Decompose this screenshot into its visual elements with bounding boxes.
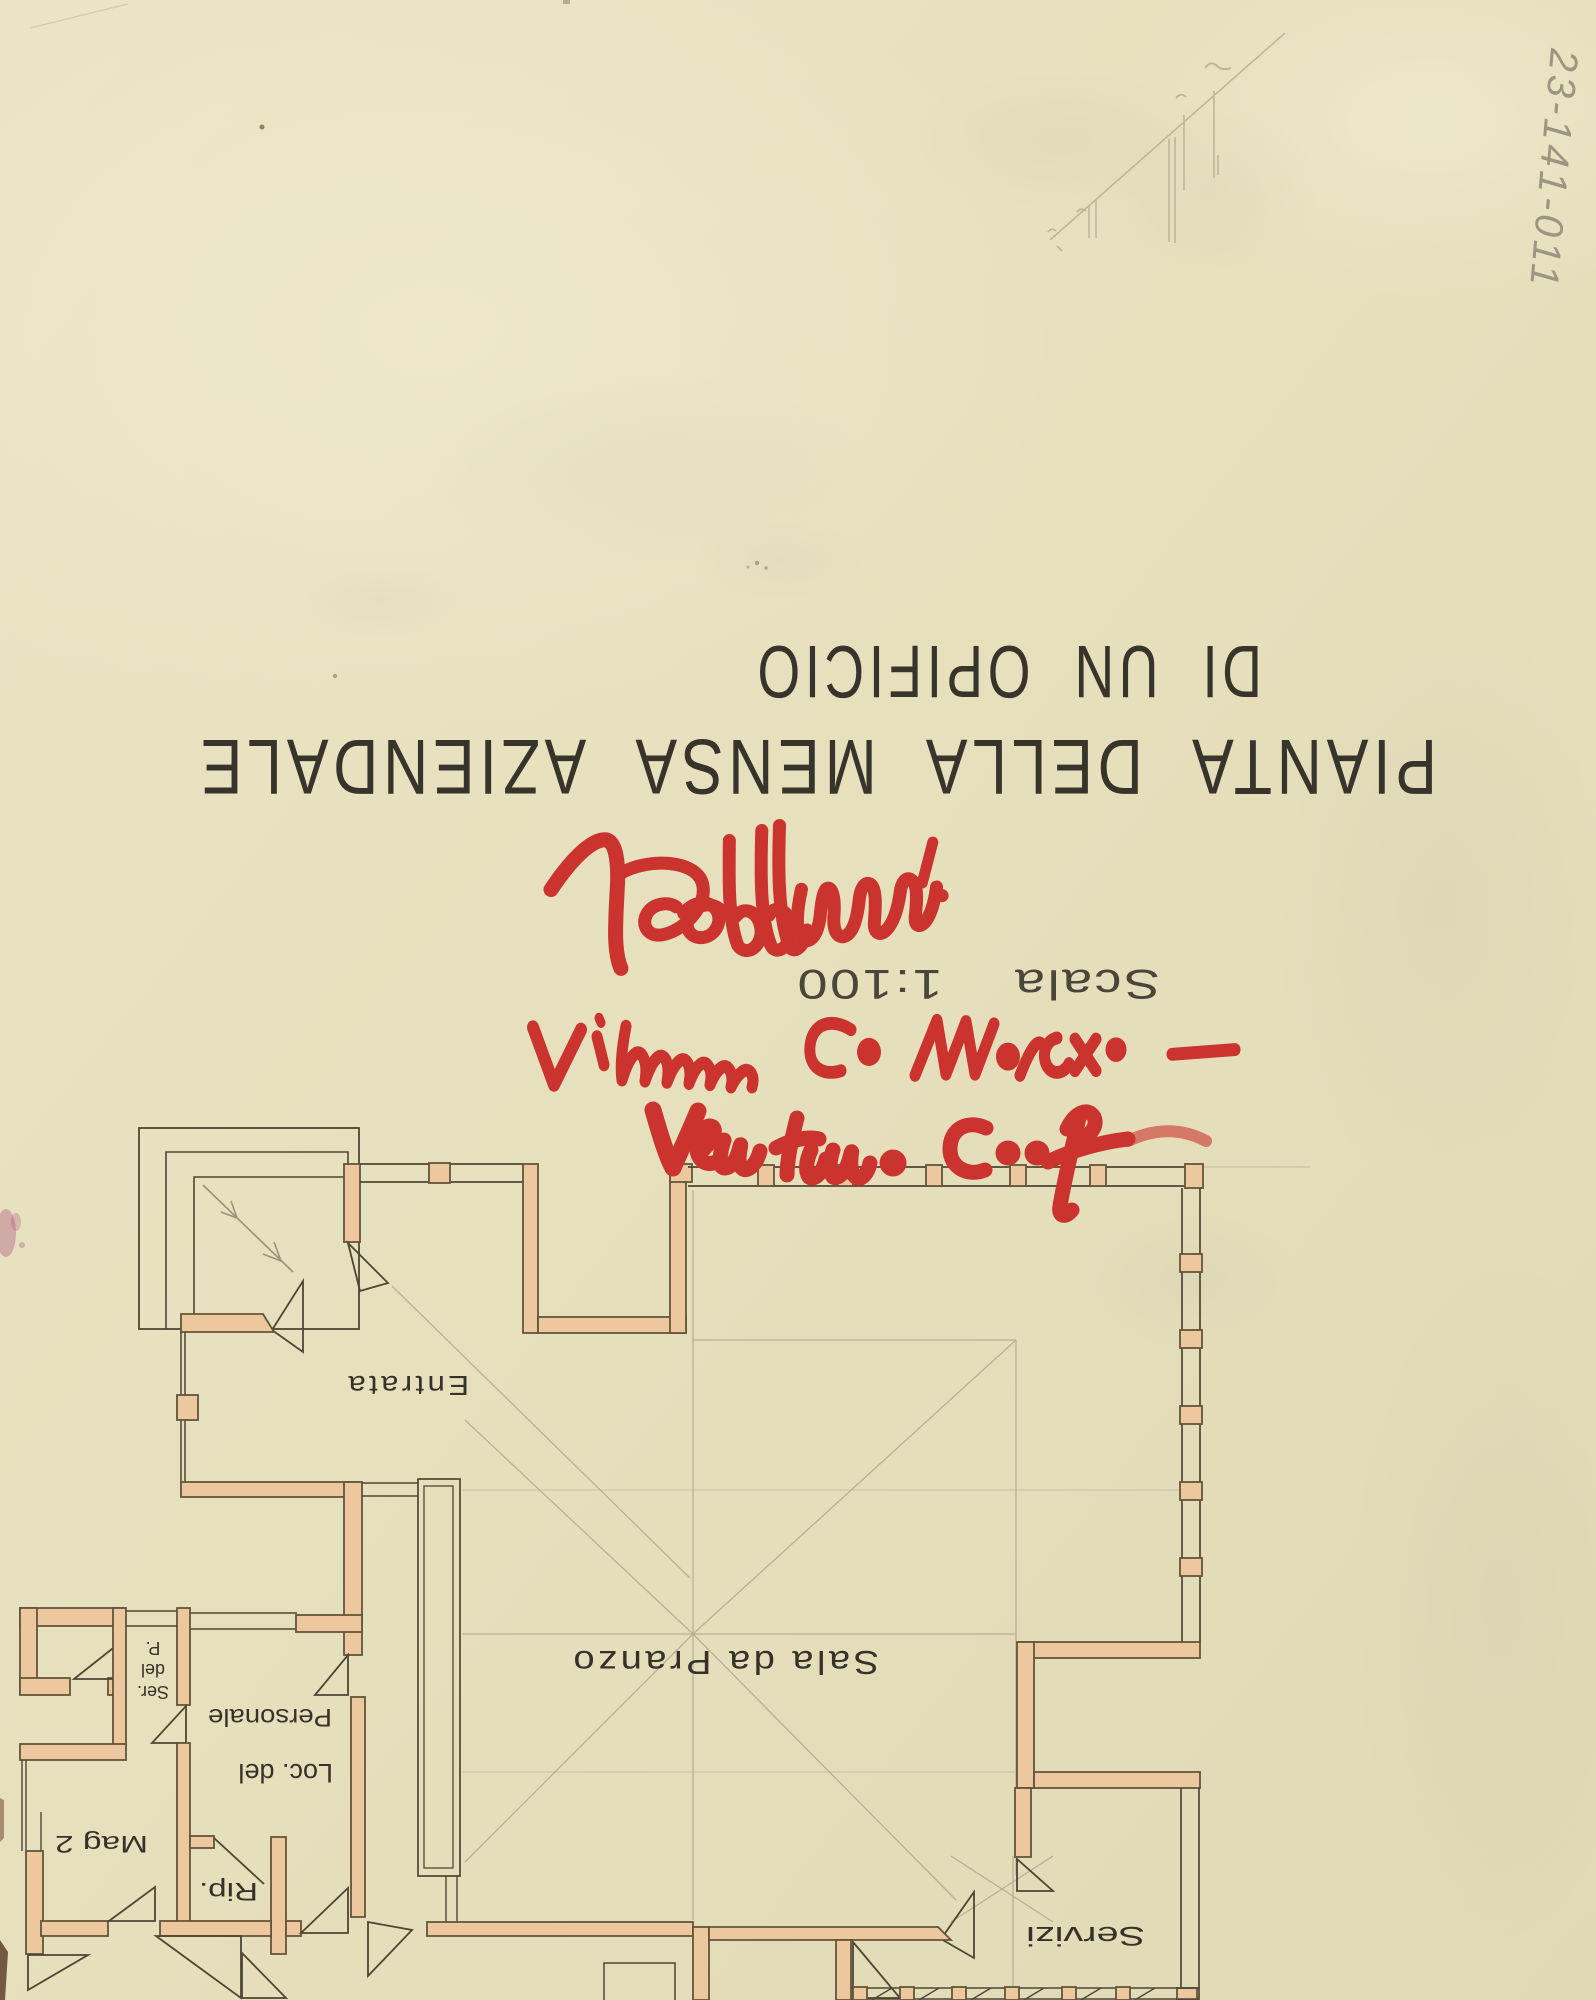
svg-text:Personale: Personale [208,1703,332,1731]
svg-text:del: del [141,1660,165,1680]
svg-text:Rip.: Rip. [199,1877,258,1905]
svg-text:Entrata: Entrata [345,1370,469,1401]
svg-text:DI UN OPIFICIO: DI UN OPIFICIO [753,630,1262,713]
svg-text:Loc. del: Loc. del [238,1758,333,1788]
svg-text:Sala da Pranzo: Sala da Pranzo [570,1644,879,1681]
svg-text:PIANTA DELLA MENSA AZIENDAL: PIANTA DELLA MENSA AZIENDALE [196,723,1437,811]
svg-text:P.: P. [146,1638,161,1658]
svg-text:Scala 1:100: Scala 1:100 [795,961,1160,1008]
svg-text:Mag 2: Mag 2 [55,1830,148,1857]
svg-text:Ser.: Ser. [137,1682,169,1702]
svg-text:Servizi: Servizi [1026,1921,1145,1951]
